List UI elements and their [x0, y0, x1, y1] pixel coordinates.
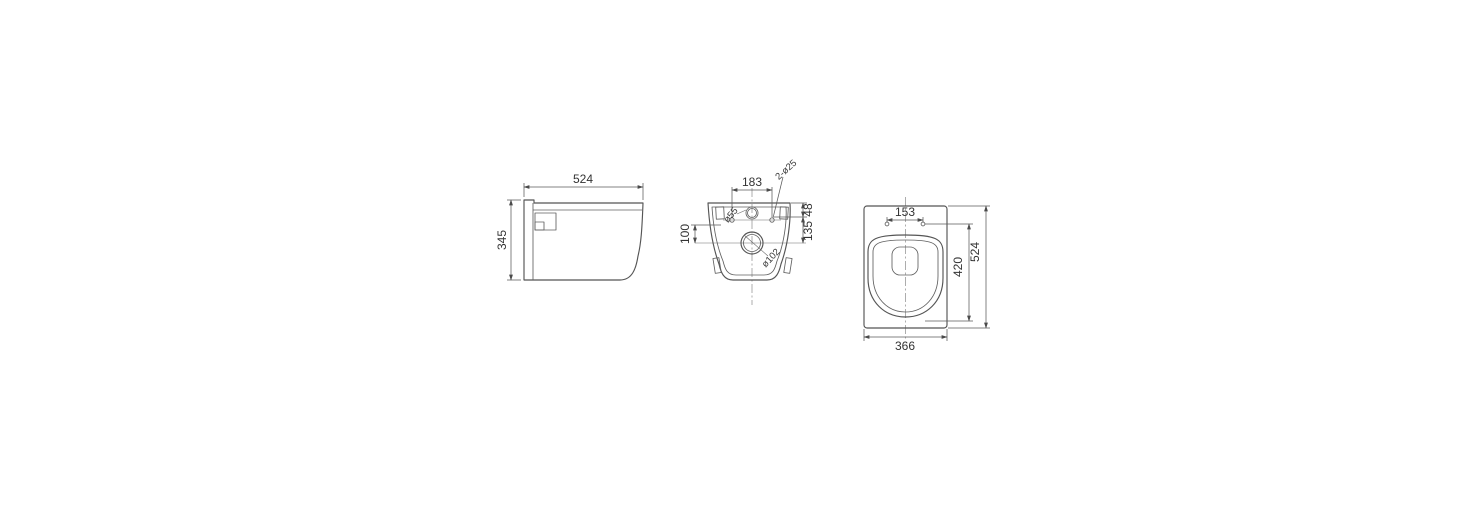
- flush-inlet-detail: [535, 213, 556, 230]
- inlet-callout-label: ø55: [722, 206, 741, 226]
- inlet-offset-label: 100: [678, 224, 692, 244]
- top-view: 153 420 524 366: [850, 192, 1005, 357]
- side-view: 524 345: [490, 168, 670, 308]
- rear-view: 183 100 48 135 2-ø25 ø55: [675, 160, 830, 310]
- top-to-outlet-label: 135: [801, 221, 815, 241]
- hinge-spacing-label: 153: [895, 205, 915, 219]
- water-spot: [892, 247, 918, 275]
- flush-inlet-step: [535, 222, 544, 230]
- side-width-label: 524: [573, 172, 593, 186]
- bowl-length-label: 420: [951, 257, 965, 277]
- rear-view-body: [708, 203, 792, 280]
- inlet-callout: ø55: [722, 206, 746, 226]
- inlet-offset-dimension: 100: [678, 224, 721, 244]
- hinge-spacing-dimension: 153: [887, 205, 923, 222]
- rear-centerlines: [695, 188, 806, 305]
- fixing-slot-lower-right: [784, 258, 792, 274]
- total-depth-label: 524: [968, 242, 982, 262]
- drawing-canvas: 524 345: [0, 0, 1482, 528]
- side-view-body: [524, 200, 643, 280]
- top-to-bolts-label: 48: [801, 203, 815, 217]
- outlet-callout: ø102: [744, 235, 783, 270]
- outlet-callout-label: ø102: [760, 247, 783, 270]
- hinge-hole-right: [921, 222, 925, 226]
- side-width-dimension: 524: [524, 172, 643, 200]
- bolt-spacing-label: 183: [742, 175, 762, 189]
- top-width-label: 366: [895, 339, 915, 353]
- bolt-callout-label: 2-ø25: [773, 158, 799, 183]
- side-height-label: 345: [495, 230, 509, 250]
- pan-profile: [524, 200, 643, 280]
- hinge-hole-left: [885, 222, 889, 226]
- side-height-dimension: 345: [495, 200, 521, 280]
